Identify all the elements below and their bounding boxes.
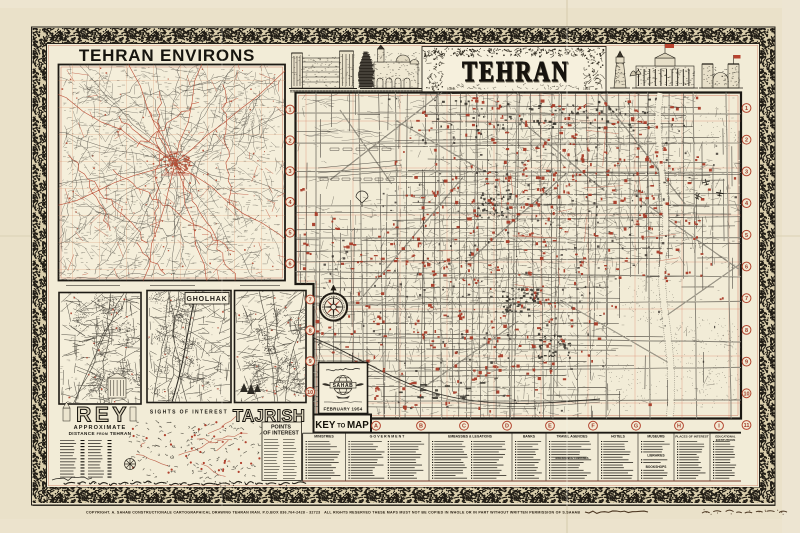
- svg-text:D: D: [505, 424, 509, 430]
- svg-text:9: 9: [745, 360, 748, 366]
- svg-text:BANKS: BANKS: [523, 435, 536, 439]
- svg-text:LIBRARIES: LIBRARIES: [647, 454, 664, 458]
- svg-text:DISTANCE FROM TEHRAN: DISTANCE FROM TEHRAN: [69, 431, 132, 436]
- svg-text:G: G: [634, 424, 638, 430]
- svg-text:C: C: [462, 424, 466, 430]
- svg-text:10: 10: [743, 391, 749, 397]
- svg-text:1: 1: [288, 108, 291, 114]
- svg-text:INSURANCE COMPANIES: INSURANCE COMPANIES: [556, 456, 589, 460]
- svg-text:HOTELS: HOTELS: [611, 435, 625, 439]
- svg-text:SIGHTS OF INTEREST: SIGHTS OF INTEREST: [150, 410, 228, 416]
- svg-text:TRAVEL AGENCIES: TRAVEL AGENCIES: [557, 435, 589, 439]
- svg-text:10: 10: [307, 390, 313, 396]
- svg-text:H: H: [677, 424, 681, 430]
- svg-text:8: 8: [745, 328, 748, 334]
- svg-text:9: 9: [309, 359, 312, 365]
- svg-text:1954: 1954: [583, 87, 590, 91]
- svg-text:MUSEUMS: MUSEUMS: [647, 435, 665, 439]
- svg-text:1320: 1320: [447, 87, 454, 91]
- svg-text:3: 3: [745, 169, 748, 175]
- svg-text:5: 5: [745, 233, 748, 239]
- svg-text:TEHRAN ENVIRONS: TEHRAN ENVIRONS: [79, 46, 255, 65]
- svg-text:E: E: [548, 424, 552, 430]
- svg-text:3: 3: [288, 169, 291, 175]
- svg-text:SAHAB: SAHAB: [333, 383, 354, 389]
- svg-text:GHOLHAK: GHOLHAK: [187, 296, 228, 303]
- svg-text:MINISTRIES: MINISTRIES: [314, 435, 334, 439]
- svg-text:6: 6: [745, 265, 748, 271]
- svg-text:2: 2: [745, 138, 748, 144]
- svg-text:BOOKSHOPS: BOOKSHOPS: [646, 465, 667, 469]
- svg-text:B: B: [419, 424, 423, 430]
- svg-text:5: 5: [288, 231, 291, 237]
- svg-text:8: 8: [309, 328, 312, 334]
- svg-text:7: 7: [309, 298, 312, 304]
- svg-text:OF INTEREST: OF INTEREST: [263, 431, 299, 437]
- svg-text:6: 6: [288, 262, 291, 268]
- svg-text:PLACESOFINTEREST: PLACESOFINTEREST: [675, 435, 708, 439]
- svg-text:COPYRIGHT. A. SAHAB CONSTRUCTI: COPYRIGHT. A. SAHAB CONSTRUCTIONALE CART…: [86, 511, 580, 515]
- svg-text:A: A: [374, 424, 378, 430]
- svg-text:7: 7: [745, 296, 748, 302]
- svg-text:11: 11: [744, 423, 750, 429]
- svg-text:REY: REY: [76, 404, 130, 427]
- svg-text:EMBASSIES & LEGATIONS: EMBASSIES & LEGATIONS: [448, 435, 493, 439]
- svg-text:FEBRUARY 1954: FEBRUARY 1954: [323, 407, 362, 412]
- svg-text:G O V E R N M E N T: G O V E R N M E N T: [370, 435, 406, 439]
- svg-text:TEHRAN: TEHRAN: [462, 57, 570, 88]
- svg-text:2: 2: [288, 138, 291, 144]
- svg-text:1: 1: [745, 106, 748, 112]
